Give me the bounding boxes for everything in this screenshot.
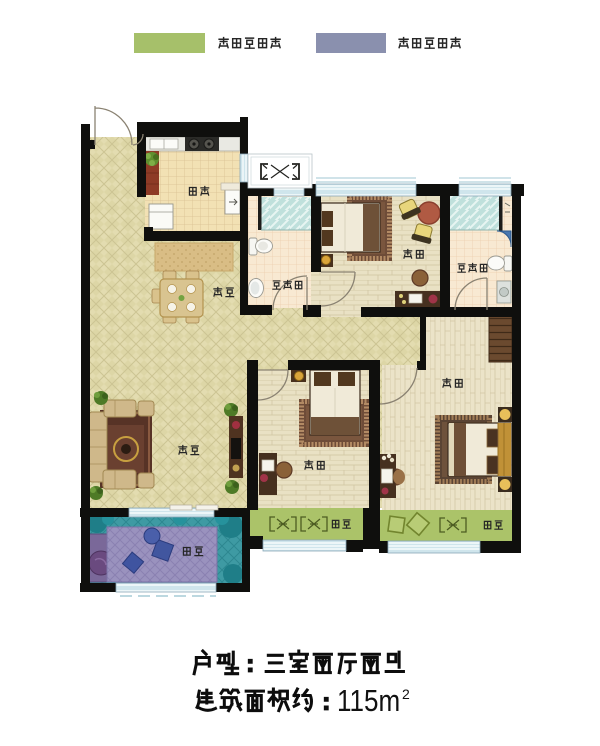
svg-text:115m: 115m	[337, 684, 400, 719]
svg-text:2: 2	[402, 686, 410, 702]
